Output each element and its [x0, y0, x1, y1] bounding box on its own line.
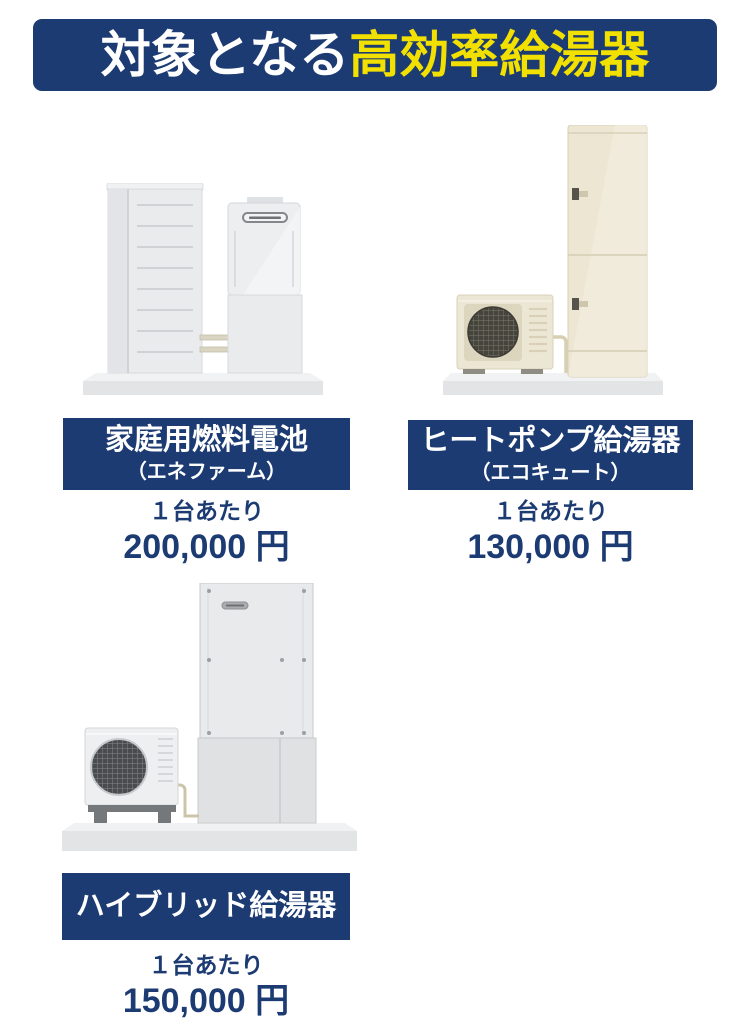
- infographic-page: 対象となる高効率給湯器: [0, 0, 750, 1034]
- product-label-hybrid: ハイブリッド給湯器: [62, 873, 350, 940]
- platform: [62, 823, 357, 851]
- unit-label: １台あたり: [408, 497, 693, 526]
- price-block-enefarm: １台あたり 200,000 円: [63, 497, 350, 568]
- fan-grille: [91, 739, 147, 795]
- heat-pump-illustration: [443, 125, 663, 395]
- header-title-normal: 対象となる: [101, 30, 350, 80]
- product-subname: （エコキュート）: [471, 462, 631, 485]
- water-heater-unit: [228, 197, 302, 373]
- product-name: 家庭用燃料電池: [105, 424, 308, 457]
- price-value: 200,000 円: [63, 527, 350, 568]
- hybrid-tank: [198, 583, 316, 823]
- price-block-hybrid: １台あたり 150,000 円: [62, 951, 350, 1022]
- header-banner: 対象となる高効率給湯器: [33, 19, 717, 91]
- product-name: ヒートポンプ給湯器: [420, 425, 680, 458]
- price-value: 150,000 円: [62, 981, 350, 1022]
- header-title-highlight: 高効率給湯器: [349, 30, 649, 80]
- fan-grille: [468, 307, 518, 357]
- product-label-ecocute: ヒートポンプ給湯器 （エコキュート）: [408, 420, 693, 490]
- heat-pump-outdoor-unit: [457, 295, 553, 374]
- product-subname: （エネファーム）: [127, 461, 286, 484]
- connecting-pipes: [200, 335, 230, 352]
- unit-label: １台あたり: [62, 951, 350, 980]
- product-name: ハイブリッド給湯器: [76, 890, 336, 923]
- hybrid-outdoor-unit: [85, 728, 178, 823]
- fuel-cell-illustration: [83, 183, 323, 395]
- product-label-enefarm: 家庭用燃料電池 （エネファーム）: [63, 418, 350, 490]
- hybrid-heater-illustration: [62, 583, 357, 851]
- price-block-ecocute: １台あたり 130,000 円: [408, 497, 693, 568]
- side-vent-slats: [529, 309, 547, 351]
- unit-label: １台あたり: [63, 497, 350, 526]
- side-vent-slats: [158, 739, 173, 781]
- price-value: 130,000 円: [408, 527, 693, 568]
- fuel-cell-cabinet: [107, 183, 203, 373]
- platform: [83, 373, 323, 395]
- storage-tank: [568, 125, 647, 377]
